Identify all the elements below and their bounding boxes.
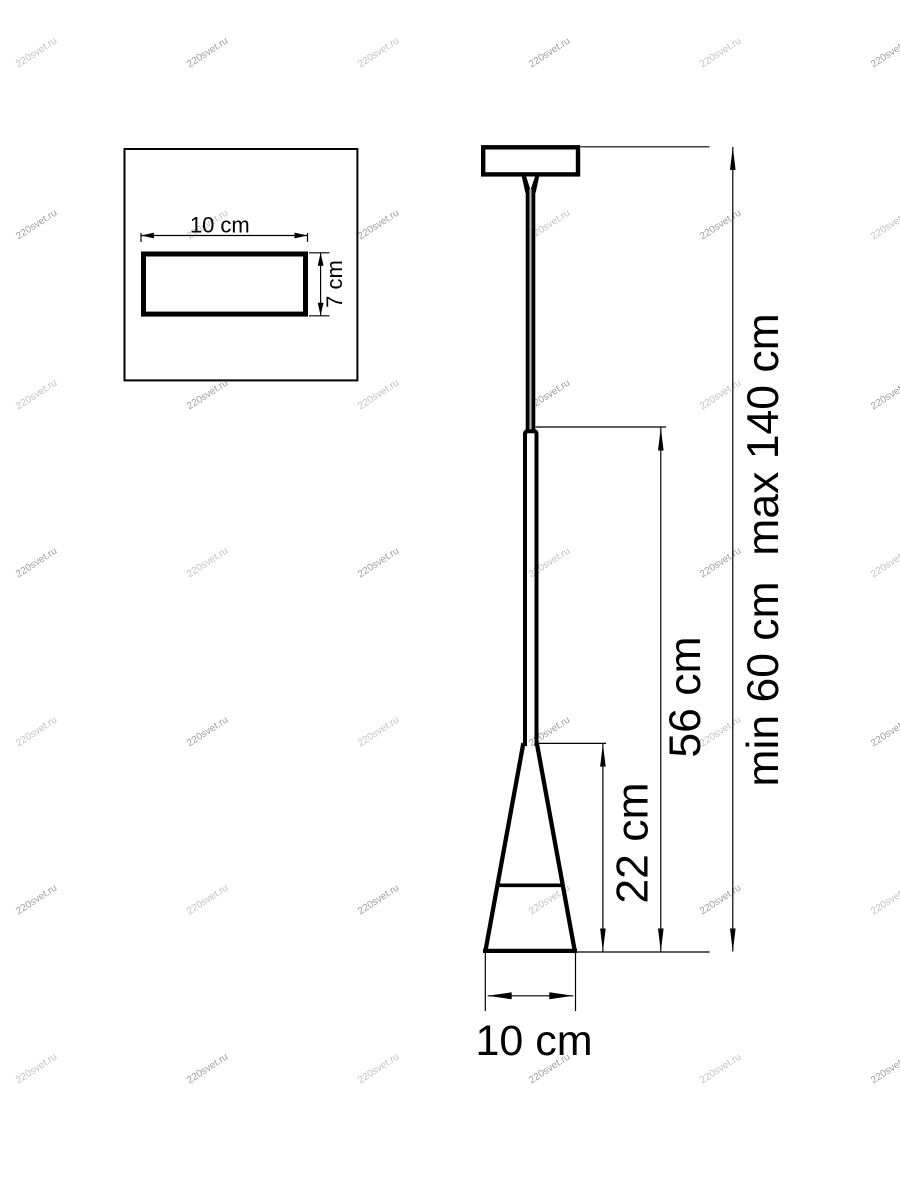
svg-text:10 cm: 10 cm	[190, 213, 250, 238]
svg-text:10 cm: 10 cm	[475, 1017, 592, 1065]
svg-text:min 60 cm: min 60 cm	[739, 581, 788, 786]
svg-text:56 cm: 56 cm	[661, 636, 710, 757]
svg-text:22 cm: 22 cm	[609, 782, 658, 903]
svg-text:max 140 cm: max 140 cm	[739, 313, 788, 555]
svg-text:7 cm: 7 cm	[322, 260, 347, 308]
